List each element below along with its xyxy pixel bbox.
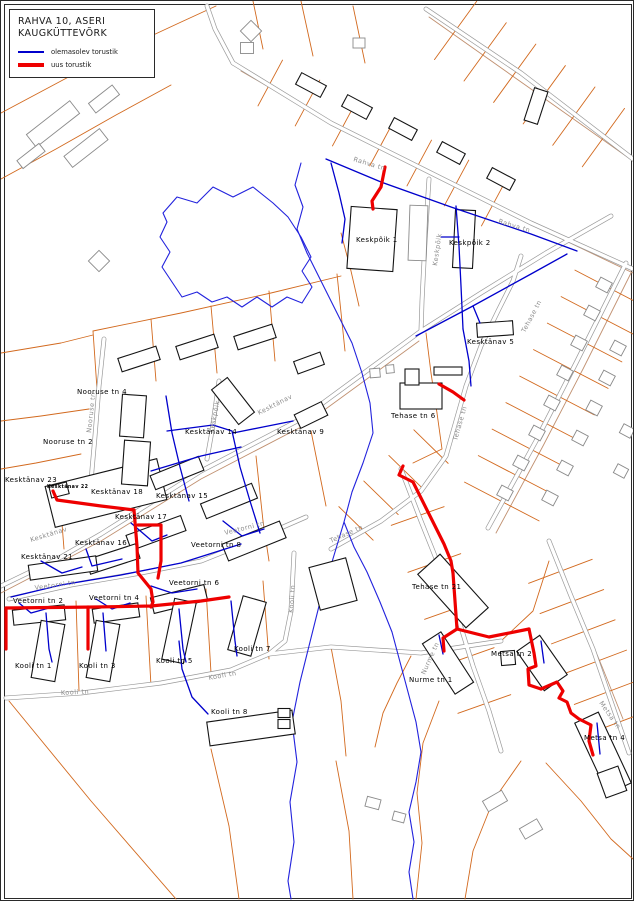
building-label: Kesktänav 23 — [5, 476, 57, 484]
new-pipeline — [372, 167, 385, 209]
building — [201, 483, 258, 518]
building-label: Keskpõik 2 — [449, 239, 491, 247]
building-gray — [17, 143, 45, 168]
building — [86, 620, 120, 681]
layer-water — [160, 163, 421, 899]
building — [176, 334, 218, 360]
building-label: Nurme tn 1 — [409, 676, 453, 684]
building-label: Veetorni tn 2 — [13, 597, 63, 605]
existing-pipeline — [473, 306, 480, 323]
building — [294, 352, 325, 374]
building-label: Kesktänav 17 — [115, 513, 167, 521]
building-gray — [482, 790, 507, 811]
street-label: Kesktänav — [29, 525, 68, 544]
parcel-line — [211, 749, 239, 899]
building-label: Kesktänav 5 — [467, 338, 514, 346]
parcel-line — [331, 647, 346, 756]
parcel-line — [416, 701, 439, 899]
building-label: Veetorni tn 6 — [169, 579, 219, 587]
building-label: Tehase tn 21 — [411, 583, 461, 591]
building-gray — [610, 340, 627, 356]
building-gray — [240, 20, 261, 41]
building — [400, 383, 442, 409]
road — [426, 9, 633, 159]
street-label: Kooli tn — [61, 688, 90, 697]
building — [309, 558, 357, 610]
building-gray — [353, 38, 365, 48]
street-label: Kooli tn — [287, 584, 297, 613]
building-gray — [586, 400, 603, 416]
building — [118, 346, 160, 372]
building-label: Kesktänav 15 — [156, 492, 208, 500]
building — [477, 321, 514, 337]
building — [120, 394, 147, 438]
building-gray — [408, 205, 428, 261]
building — [487, 168, 516, 191]
building-gray — [557, 365, 574, 381]
building-label: Kooli tn 8 — [211, 708, 248, 716]
parcel-line — [76, 601, 79, 691]
existing-pipe-swatch — [18, 51, 44, 53]
building-label: Tehase tn 6 — [390, 412, 436, 420]
building-label: Kesktänav 18 — [91, 488, 143, 496]
building-label: Kesktänav 22 — [47, 484, 88, 490]
building — [342, 95, 373, 120]
building-label: Metsa tn 2 — [491, 650, 532, 658]
parcel-line — [375, 656, 411, 747]
parcel-line — [336, 761, 353, 899]
street-label: Tehase tn — [519, 299, 543, 335]
map-title-line1: RAHVA 10, ASERI — [18, 16, 146, 28]
building-gray — [370, 368, 381, 378]
building — [405, 369, 419, 385]
building-gray — [386, 365, 395, 374]
building — [434, 367, 462, 375]
parcel-line — [465, 761, 521, 899]
existing-pipeline — [331, 163, 345, 243]
map-canvas: Rahva tnRahva tnKesktänavKesktänavKeskpõ… — [1, 1, 634, 901]
building-gray — [88, 250, 109, 271]
parcel-line — [337, 274, 345, 351]
building — [524, 88, 548, 125]
building-label: Kooli tn 3 — [79, 662, 116, 670]
building — [278, 709, 290, 718]
building-gray — [557, 460, 574, 476]
building-label: Metsa tn 4 — [584, 734, 625, 742]
building-label: Nooruse tn 4 — [77, 388, 127, 396]
stream-line — [295, 163, 307, 253]
parcel-line — [413, 413, 442, 463]
building — [294, 402, 328, 429]
map-title-line2: KAUGKÜTTEVÕRK — [18, 28, 146, 40]
building-gray — [613, 464, 628, 478]
building-gray — [599, 370, 616, 386]
building — [296, 73, 327, 98]
parcel-line — [9, 701, 176, 899]
new-pipeline — [439, 384, 464, 400]
building-label: Nooruse tn 2 — [43, 438, 93, 446]
boundary-line — [496, 273, 631, 533]
legend: olemasolev torustik uus torustik — [18, 48, 146, 69]
building-gray — [572, 430, 589, 446]
street-label: Kesktänav — [256, 392, 294, 416]
building-label: Keskpõik 1 — [356, 236, 398, 244]
legend-label-new: uus torustik — [51, 61, 91, 69]
parcel-line — [1, 335, 93, 353]
building — [389, 118, 418, 141]
building-label: Veetorni tn 8 — [191, 541, 241, 549]
building — [234, 324, 276, 350]
building-gray — [519, 819, 542, 839]
legend-item-existing: olemasolev torustik — [18, 48, 146, 56]
building-label: Kesktänav 16 — [75, 539, 127, 547]
building-label: Kooli tn 5 — [156, 657, 193, 665]
existing-pipeline — [213, 425, 260, 533]
legend-label-existing: olemasolev torustik — [51, 48, 118, 56]
layer-building-gray — [17, 20, 634, 839]
building-gray — [64, 129, 108, 168]
legend-item-new: uus torustik — [18, 61, 146, 69]
parcel-line — [1, 409, 89, 421]
parcel-line — [146, 596, 151, 686]
street-label: Rahva tn — [352, 155, 386, 172]
title-box: RAHVA 10, ASERI KAUGKÜTTEVÕRK olemasolev… — [9, 9, 155, 78]
parcel-line — [93, 276, 341, 331]
parcel-line — [1, 454, 81, 469]
building — [121, 440, 150, 486]
building-gray — [88, 85, 119, 113]
parcel-line — [301, 1, 313, 56]
building-label: Kooli tn 1 — [15, 662, 52, 670]
building-label: Kesktänav 21 — [21, 553, 73, 561]
building-gray — [241, 43, 254, 54]
street-label: Keskpõik — [431, 233, 443, 267]
parcel-line — [93, 331, 97, 389]
building — [437, 142, 466, 165]
building-gray — [542, 490, 559, 506]
building-gray — [392, 811, 406, 823]
parcel-line — [464, 23, 506, 81]
building-label: Veetorni tn 4 — [89, 594, 139, 602]
building-gray — [365, 796, 381, 809]
parcel-line — [353, 6, 365, 63]
parcel-line — [494, 44, 536, 102]
building-label: Kesktänav 14 — [185, 428, 237, 436]
parcel-line — [311, 431, 326, 506]
building-label: Kooli tn 7 — [234, 645, 271, 653]
new-pipe-swatch — [18, 63, 44, 67]
building — [278, 720, 290, 729]
building-label: Kesktänav 9 — [277, 428, 324, 436]
map-frame: Rahva tnRahva tnKesktänavKesktänavKeskpõ… — [0, 0, 634, 901]
